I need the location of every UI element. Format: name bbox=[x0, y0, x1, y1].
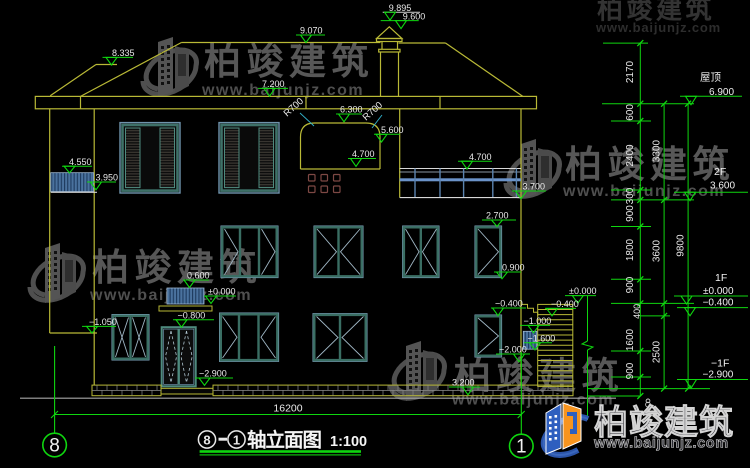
svg-text:900: 900 bbox=[625, 276, 636, 293]
svg-text:2400: 2400 bbox=[625, 144, 636, 167]
svg-text:8: 8 bbox=[203, 433, 210, 448]
svg-text:柏竣建筑: 柏竣建筑 bbox=[565, 143, 735, 185]
svg-text:−0.400: −0.400 bbox=[703, 297, 734, 308]
svg-text:3.700: 3.700 bbox=[523, 182, 546, 192]
svg-text:3.950: 3.950 bbox=[96, 173, 119, 183]
svg-text:9.600: 9.600 bbox=[403, 11, 426, 21]
svg-text:9.070: 9.070 bbox=[300, 26, 323, 36]
svg-text:2500: 2500 bbox=[652, 340, 663, 363]
svg-text:3600: 3600 bbox=[652, 239, 663, 262]
svg-text:www.baijunjz.com: www.baijunjz.com bbox=[451, 392, 614, 409]
svg-text:16200: 16200 bbox=[273, 403, 302, 415]
svg-text:900: 900 bbox=[625, 205, 636, 222]
svg-text:300: 300 bbox=[625, 187, 636, 204]
svg-text:−0.400: −0.400 bbox=[495, 299, 523, 309]
svg-text:±0.000: ±0.000 bbox=[208, 287, 235, 297]
svg-text:2170: 2170 bbox=[625, 60, 636, 83]
svg-text:柏竣建筑: 柏竣建筑 bbox=[92, 246, 262, 288]
svg-text:3.600: 3.600 bbox=[710, 181, 735, 192]
svg-text:1: 1 bbox=[516, 437, 527, 458]
svg-text:4.700: 4.700 bbox=[352, 149, 375, 159]
svg-text:4.700: 4.700 bbox=[469, 152, 492, 162]
svg-text:2F: 2F bbox=[714, 166, 726, 178]
svg-text:600: 600 bbox=[625, 104, 636, 121]
svg-text:8: 8 bbox=[49, 436, 60, 457]
svg-text:±0.000: ±0.000 bbox=[703, 286, 734, 297]
svg-text:1F: 1F bbox=[715, 272, 727, 284]
svg-text:1:100: 1:100 bbox=[330, 434, 367, 450]
svg-text:1: 1 bbox=[233, 433, 240, 448]
svg-text:屋顶: 屋顶 bbox=[700, 72, 721, 84]
svg-text:−2.000: −2.000 bbox=[499, 345, 527, 355]
svg-text:8.335: 8.335 bbox=[112, 48, 135, 58]
svg-text:±0.000: ±0.000 bbox=[569, 286, 596, 296]
svg-text:−1.050: −1.050 bbox=[89, 317, 117, 327]
svg-text:3300: 3300 bbox=[652, 139, 663, 162]
svg-text:−1F: −1F bbox=[711, 358, 729, 370]
svg-text:0.900: 0.900 bbox=[502, 263, 525, 273]
svg-text:轴立面图: 轴立面图 bbox=[247, 429, 322, 452]
svg-text:3.200: 3.200 bbox=[452, 378, 475, 388]
svg-text:6.300: 6.300 bbox=[340, 105, 363, 115]
svg-text:400: 400 bbox=[632, 304, 642, 319]
svg-text:−1.000: −1.000 bbox=[524, 316, 552, 326]
svg-text:2.700: 2.700 bbox=[486, 211, 509, 221]
svg-text:−0.400: −0.400 bbox=[551, 299, 579, 309]
svg-text:−2.900: −2.900 bbox=[199, 369, 227, 379]
svg-text:1600: 1600 bbox=[625, 328, 636, 351]
svg-text:www.baijunjz.com: www.baijunjz.com bbox=[595, 20, 721, 35]
svg-text:−1.600: −1.600 bbox=[528, 333, 556, 343]
svg-text:7.200: 7.200 bbox=[262, 79, 285, 89]
svg-text:1800: 1800 bbox=[625, 238, 636, 261]
svg-text:900: 900 bbox=[625, 362, 636, 379]
svg-text:6.900: 6.900 bbox=[709, 87, 734, 98]
svg-text:www.baijunjz.com: www.baijunjz.com bbox=[593, 436, 729, 452]
svg-text:5.600: 5.600 bbox=[381, 125, 404, 135]
svg-text:4.550: 4.550 bbox=[69, 157, 92, 167]
svg-text:0.600: 0.600 bbox=[187, 271, 210, 281]
svg-text:−0.800: −0.800 bbox=[178, 310, 206, 320]
svg-text:−2.900: −2.900 bbox=[703, 369, 734, 380]
svg-text:9800: 9800 bbox=[676, 234, 687, 257]
svg-text:柏竣建筑: 柏竣建筑 bbox=[204, 40, 374, 82]
